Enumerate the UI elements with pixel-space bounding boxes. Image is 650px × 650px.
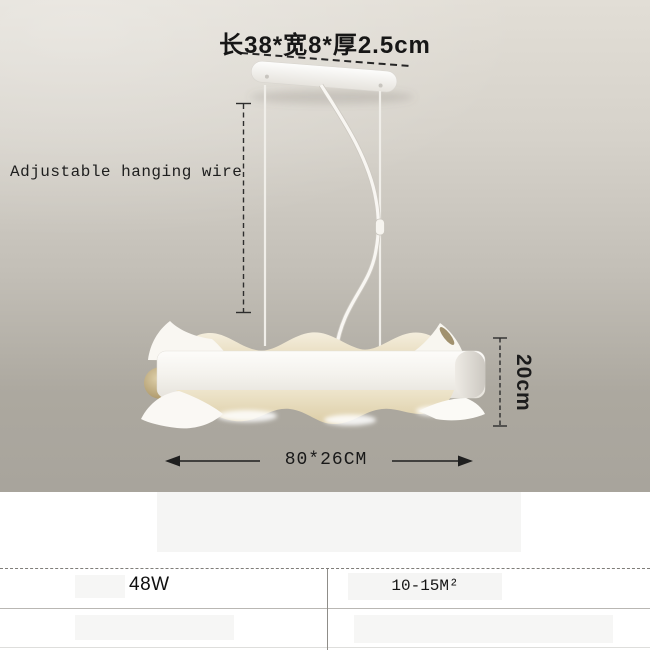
lamp-height-label: 20cm [511, 340, 535, 426]
width-arrow-left-icon [165, 456, 260, 467]
width-arrow-right-icon [392, 456, 473, 467]
spec-placeholder-left [75, 615, 234, 640]
coverage-area-value: 10-15M² [348, 573, 502, 600]
product-dimension-diagram: 长38*宽8*厚2.5cm Adjustable hanging wire 20… [0, 0, 650, 650]
diagram-graphics [0, 0, 650, 650]
lamp-bottom-shade [176, 390, 454, 424]
lamp-band-right-cap [455, 351, 485, 398]
spec-table-top-border [0, 568, 650, 569]
power-cable [321, 85, 378, 350]
hanging-wire-label: Adjustable hanging wire [10, 163, 242, 181]
wattage-value: 48W [129, 574, 170, 596]
lamp-width-label: 80*26CM [262, 450, 390, 470]
spec-table-column-divider [327, 569, 328, 650]
pendant-lamp [141, 321, 485, 428]
height-dimension-line [493, 338, 507, 426]
spec-table-bottom-border [0, 647, 650, 648]
mount-dimension-label: 长38*宽8*厚2.5cm [0, 25, 650, 60]
spec-table-row-divider [0, 608, 650, 609]
wire-length-dimension-line [236, 104, 251, 313]
spec-placeholder-right [354, 615, 613, 643]
wattage-icon-placeholder [75, 575, 125, 598]
wire-adjuster [376, 219, 385, 235]
